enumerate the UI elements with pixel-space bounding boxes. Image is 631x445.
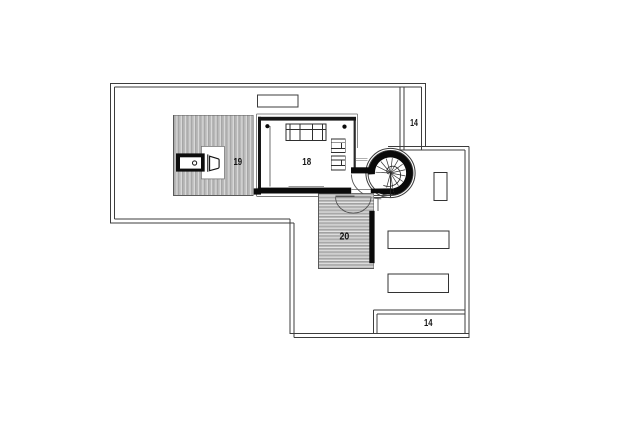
- svg-text:19: 19: [234, 157, 243, 168]
- svg-text:14: 14: [424, 318, 433, 329]
- svg-text:18: 18: [302, 157, 311, 168]
- svg-text:20: 20: [340, 231, 350, 242]
- svg-text:14: 14: [410, 118, 418, 129]
